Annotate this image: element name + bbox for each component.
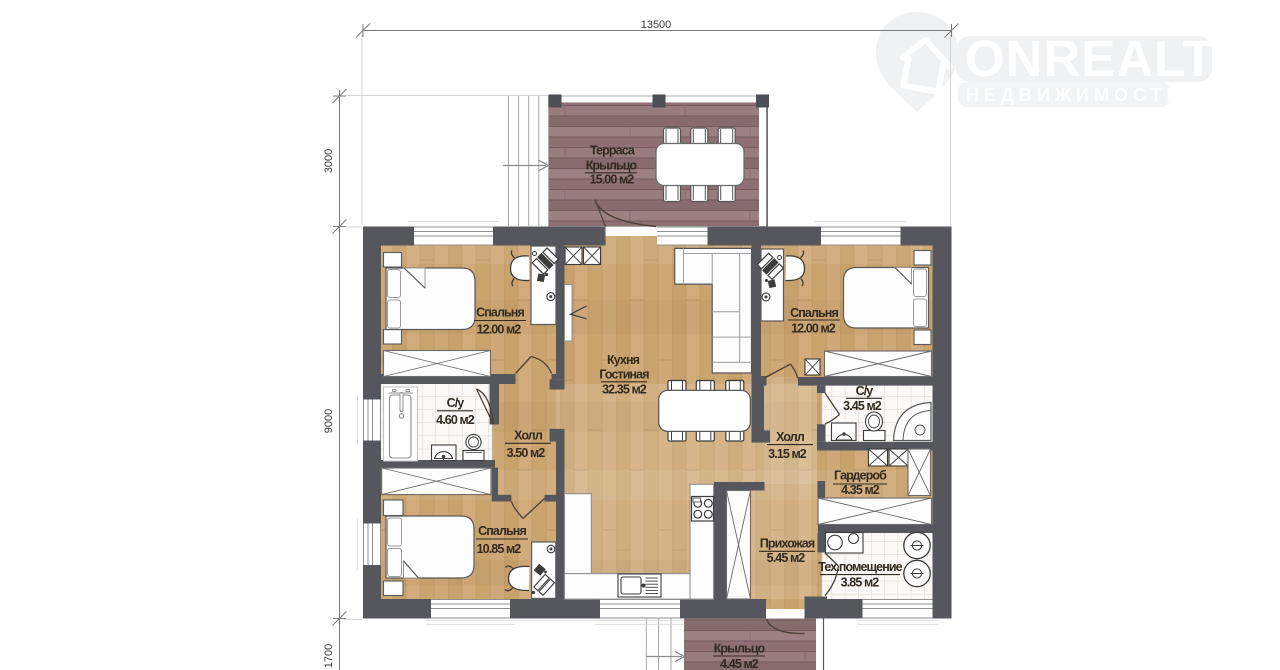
- svg-text:9000: 9000: [323, 409, 335, 433]
- svg-text:3.50 м2: 3.50 м2: [507, 446, 546, 460]
- svg-text:3.45 м2: 3.45 м2: [843, 399, 882, 413]
- svg-text:Терраса: Терраса: [590, 144, 636, 158]
- svg-text:4.60 м2: 4.60 м2: [436, 413, 475, 427]
- svg-text:12.00 м2: 12.00 м2: [477, 323, 522, 337]
- svg-text:15.00 м2: 15.00 м2: [590, 173, 635, 187]
- svg-text:4.35 м2: 4.35 м2: [841, 483, 880, 497]
- svg-text:10.85 м2: 10.85 м2: [477, 542, 522, 556]
- svg-text:3.85 м2: 3.85 м2: [841, 576, 880, 590]
- svg-text:Кухня: Кухня: [607, 353, 640, 367]
- svg-text:12.00 м2: 12.00 м2: [791, 322, 836, 336]
- svg-text:3000: 3000: [323, 149, 335, 173]
- svg-text:13500: 13500: [641, 19, 672, 31]
- svg-text:4.45 м2: 4.45 м2: [720, 657, 759, 670]
- svg-text:Холл: Холл: [776, 430, 805, 444]
- svg-text:Спальня: Спальня: [478, 524, 526, 538]
- svg-text:Крыльцо: Крыльцо: [586, 159, 638, 173]
- svg-text:1700: 1700: [323, 644, 335, 668]
- svg-text:НЕДВИЖИМОСТЬ: НЕДВИЖИМОСТЬ: [966, 85, 1184, 105]
- svg-text:5.45 м2: 5.45 м2: [767, 551, 806, 565]
- svg-text:С/у: С/у: [447, 396, 465, 410]
- svg-text:Спальня: Спальня: [790, 306, 838, 320]
- svg-text:Тех.помещение: Тех.помещение: [818, 560, 902, 574]
- svg-text:Гостиная: Гостиная: [599, 368, 649, 382]
- svg-text:Крыльцо: Крыльцо: [714, 642, 766, 656]
- svg-text:ONREALT: ONREALT: [965, 30, 1215, 87]
- svg-text:Прихожая: Прихожая: [760, 537, 815, 551]
- svg-text:Холл: Холл: [514, 429, 543, 443]
- svg-text:32.35 м2: 32.35 м2: [602, 382, 647, 396]
- svg-text:С/у: С/у: [856, 384, 874, 398]
- svg-text:Спальня: Спальня: [476, 306, 524, 320]
- svg-text:Гардероб: Гардероб: [834, 469, 887, 483]
- svg-text:3.15 м2: 3.15 м2: [768, 447, 807, 461]
